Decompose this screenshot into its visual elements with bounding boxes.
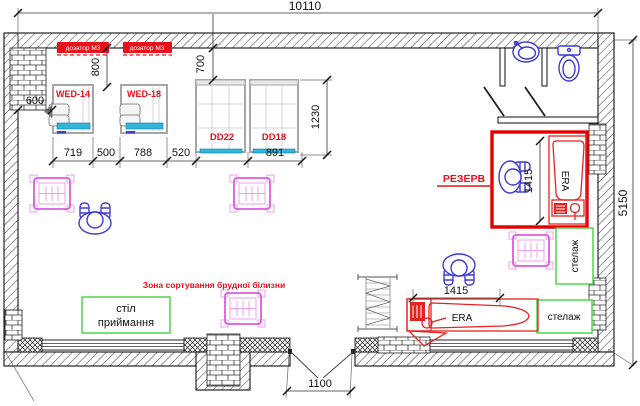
svg-text:891: 891: [266, 147, 284, 159]
masonry-pier: [355, 338, 378, 352]
dim-dryer-depth: 1230: [300, 76, 332, 159]
shelf-vertical: стелаж: [556, 228, 593, 284]
drying-rack-icon: [358, 274, 397, 332]
reception-label-2: приймання: [98, 317, 154, 329]
laundry-cart-icon: [30, 175, 74, 212]
entrance-door: [288, 349, 355, 378]
svg-text:600: 600: [26, 95, 44, 107]
detergent-drawer-icon: [120, 104, 140, 116]
svg-text:788: 788: [134, 147, 152, 159]
washer-label: WED-14: [56, 89, 90, 99]
dim-dryer-top-gap: 700: [195, 14, 217, 84]
dispenser-label-2: дозатор М3: [123, 42, 172, 55]
reserve-zone: РЕЗЕРВ ERA 1415: [437, 132, 587, 227]
person-icon: [443, 254, 475, 285]
shelf-horizontal: стелаж: [537, 300, 592, 333]
dim-reserve-depth: 1415: [523, 137, 544, 225]
window-left: [42, 340, 184, 350]
laundry-cart-icon: [230, 175, 274, 212]
washer-label: WED-18: [127, 89, 161, 99]
masonry-pier: [573, 338, 598, 352]
masonry-pier: [184, 338, 207, 352]
radiator-icon: [589, 124, 606, 174]
floor-plan: дозатор М3 дозатор М3 WED-14 WED-18 DD22: [0, 0, 640, 406]
dryer-label: DD18: [262, 132, 286, 143]
wall-bottom-right: [355, 352, 614, 366]
laundry-cart-icon: [509, 232, 553, 269]
marker: [57, 131, 66, 134]
bathroom-front-wall: [498, 117, 598, 123]
marker: [126, 131, 135, 134]
radiator-icon: [5, 310, 22, 340]
partition-wall: [500, 48, 505, 86]
svg-text:520: 520: [172, 147, 190, 159]
washer-wed18: WED-18: [120, 85, 167, 134]
window-right: [430, 340, 573, 350]
svg-text:1230: 1230: [310, 105, 322, 129]
dim-overall-depth: 5150: [614, 36, 637, 369]
washer-wed14: WED-14: [44, 85, 93, 134]
masonry-pier: [240, 338, 290, 352]
svg-text:700: 700: [195, 55, 207, 73]
svg-text:10110: 10110: [289, 0, 322, 13]
person-icon: [79, 203, 111, 234]
svg-text:1415: 1415: [523, 169, 535, 193]
dispenser-text: дозатор М3: [130, 45, 165, 52]
sink-icon: [513, 41, 539, 62]
dryer-dd22: DD22: [196, 80, 245, 153]
shelf-label: стелаж: [548, 312, 581, 323]
svg-text:719: 719: [64, 147, 82, 159]
svg-text:5150: 5150: [616, 189, 630, 216]
control-panel: [57, 123, 90, 129]
reception-table: стіл приймання: [82, 297, 170, 333]
dispenser-label-1: дозатор М3: [57, 42, 109, 55]
shelf-label: стелаж: [570, 239, 581, 272]
laundry-cart-icon: [221, 290, 265, 327]
svg-text:1100: 1100: [308, 378, 332, 390]
era-label: ERA: [559, 171, 570, 192]
dim-door-opening: 1100: [283, 354, 355, 398]
reception-label-1: стіл: [116, 303, 135, 315]
toilet-icon: [558, 46, 580, 81]
svg-text:800: 800: [90, 58, 102, 76]
door-leaf: [484, 87, 504, 116]
dryer-dd18: DD18: [250, 80, 298, 153]
svg-text:1415: 1415: [444, 285, 468, 297]
bathroom: [484, 41, 598, 123]
door-leaf: [525, 87, 545, 116]
control-panel: [200, 149, 242, 153]
reserve-label: РЕЗЕРВ: [443, 173, 486, 185]
control-panel: [126, 123, 163, 129]
dispenser-text: дозатор М3: [66, 45, 101, 52]
partition-wall: [542, 48, 547, 86]
sorting-zone-label: Зона сортування брудної білизни: [143, 280, 285, 290]
door-leaf: [291, 352, 353, 378]
svg-text:500: 500: [97, 147, 115, 159]
era-label: ERA: [452, 313, 473, 324]
dryer-label: DD22: [210, 132, 234, 143]
pillar-brick: [207, 334, 240, 386]
ironer-era-reserve: ERA: [549, 136, 586, 224]
